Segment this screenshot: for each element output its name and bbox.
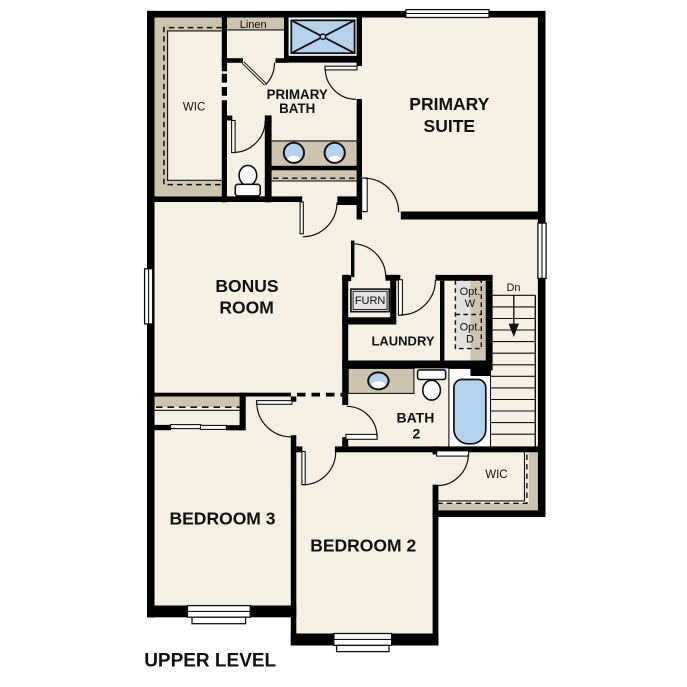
svg-text:Linen: Linen (240, 19, 267, 31)
svg-text:WIC: WIC (485, 469, 507, 481)
svg-text:SUITE: SUITE (424, 116, 476, 136)
svg-text:PRIMARY: PRIMARY (267, 87, 328, 102)
svg-text:PRIMARY: PRIMARY (409, 94, 489, 114)
svg-text:Dn: Dn (506, 282, 520, 294)
svg-text:BEDROOM 2: BEDROOM 2 (310, 536, 416, 556)
svg-text:BATH: BATH (396, 409, 434, 425)
svg-text:D: D (466, 334, 474, 346)
svg-text:WIC: WIC (183, 102, 205, 114)
svg-text:BONUS: BONUS (215, 276, 278, 296)
svg-text:LAUNDRY: LAUNDRY (371, 333, 434, 348)
svg-text:FURN: FURN (355, 295, 386, 307)
svg-text:UPPER LEVEL: UPPER LEVEL (144, 650, 276, 671)
svg-text:Opt.: Opt. (460, 286, 481, 298)
svg-text:ROOM: ROOM (219, 297, 273, 317)
svg-text:BEDROOM 3: BEDROOM 3 (170, 508, 276, 528)
svg-text:BATH: BATH (279, 101, 315, 116)
svg-text:2: 2 (413, 425, 421, 441)
svg-text:Opt.: Opt. (460, 322, 481, 334)
svg-text:W: W (465, 298, 476, 310)
